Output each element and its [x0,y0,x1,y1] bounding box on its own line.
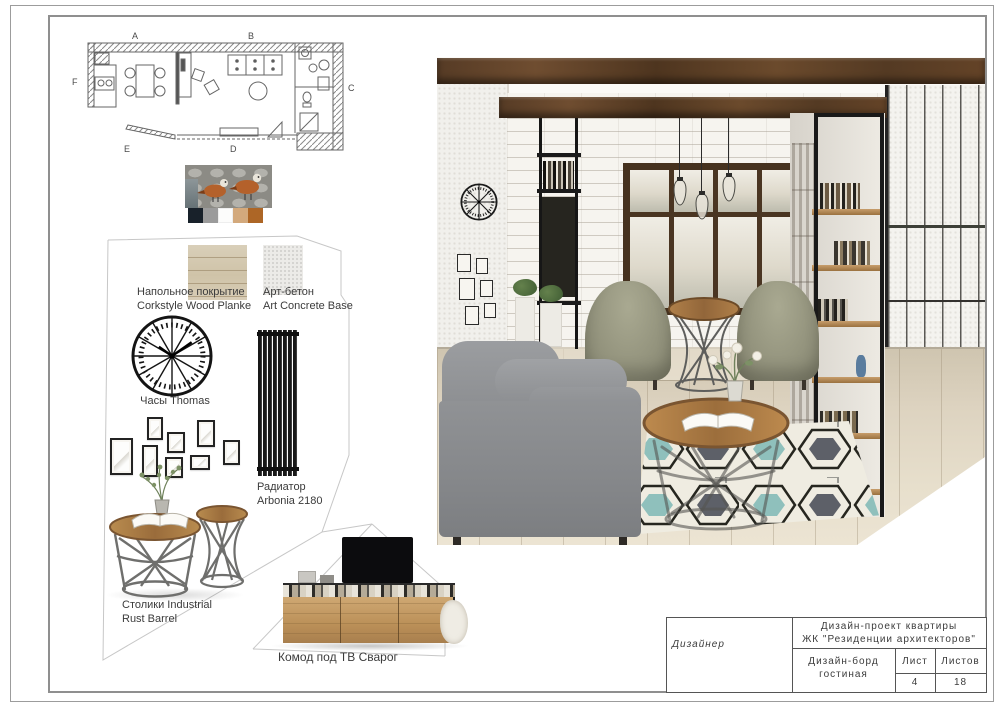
books-row [818,299,848,321]
pendant-lamp [722,173,736,203]
sofa-leg [619,537,627,545]
window-pane [630,170,669,212]
coffee-table [642,393,790,533]
plan-label-b: B [248,31,254,41]
shelf-top-bar [814,113,884,117]
plan-label-f: F [72,77,78,87]
shelf-board [812,209,884,215]
shelf-rail [575,105,578,349]
books-row [834,241,870,265]
interior-render [437,57,985,545]
chair-leg [802,380,806,390]
shelf-board [812,321,884,327]
tv-stand-label: Комод под ТВ Сварог [278,650,438,666]
render-wall-clock [460,183,498,221]
sheet-label: Лист [895,655,935,668]
render-gallery-frame [457,254,471,272]
books-row [820,183,860,209]
design-board-sheet: A B C D E F [0,0,1000,709]
palette-swatch-rust [248,208,263,223]
gallery-frame [197,420,215,447]
pendant-lamp [695,191,709,221]
radiator-item [258,330,298,476]
plan-label-a: A [132,31,138,41]
palette-swatch-dark [188,208,203,223]
tv-stand-open-shelf [283,583,455,597]
flower-vase [705,337,765,407]
inspiration-photo [185,165,272,208]
ducks-illustration [193,171,269,205]
concrete-label: Арт-бетон Art Concrete Base [263,285,353,314]
pendant-cord [679,118,680,178]
plan-label-c: C [348,83,355,93]
render-gallery-frame [465,306,479,325]
project-title: Дизайн-проект квартиры ЖК "Резиденции ар… [792,620,986,646]
shelf-board [812,265,884,271]
floor-plan: A B C D E F [60,25,360,160]
shelf-board [537,189,581,193]
potted-plant [513,279,537,296]
palette-swatch-gray [203,208,218,223]
render-gallery-frame [459,278,475,300]
industrial-table-small [196,503,248,591]
sofa-leg [453,537,461,545]
color-palette [188,208,268,223]
cabinet-seam [340,597,341,643]
sofa-body [439,401,641,537]
gallery-frame [223,440,240,465]
chair-leg [653,380,657,390]
potted-plant [539,285,563,302]
pendant-lamp [673,177,687,207]
render-gallery-frame [484,303,496,318]
title-block: Дизайнер Дизайн-проект квартиры ЖК "Рези… [666,617,987,693]
tv-screen [342,537,413,583]
shelf-rail [880,113,884,517]
ceiling-beam-front [437,58,985,84]
cabinet-seam [398,597,399,643]
glass-horizontal-bar [888,225,985,228]
board-name: Дизайн-борд гостиная [792,655,895,681]
gallery-frame [147,417,163,440]
radiator-label: Радиатор Arbonia 2180 [257,480,327,509]
gallery-frame [190,455,210,470]
sheets-total-label: Листов [935,655,986,668]
shelf-board [537,153,581,157]
sheets-total-number: 18 [935,676,986,689]
pendant-cord [701,118,702,192]
decor-box [298,571,316,583]
gallery-frame [167,432,185,453]
shelf-board [812,377,884,383]
plan-label-d: D [230,144,237,154]
designer-label: Дизайнер [672,638,725,651]
tables-label: Столики Industrial Rust Barrel [122,598,242,627]
palette-swatch-white [218,208,233,223]
plan-label-e: E [124,144,130,154]
palette-swatch-tan [233,208,248,223]
wall-clock-item [130,314,214,398]
sheet-number: 4 [895,676,935,689]
shelf-back-panel [542,197,575,297]
render-gallery-frame [476,258,488,274]
flooring-label: Напольное покрытие Corkstyle Wood Planke [137,285,252,314]
sheepskin-throw [440,600,468,644]
render-gallery-frame [480,280,493,297]
decor-box [320,575,334,583]
open-book-render [680,407,756,435]
decor-vase [856,355,866,377]
vase-with-branches [136,460,188,515]
pendant-cord [728,118,729,174]
tv-stand-cabinet [283,597,455,643]
open-book [130,508,190,532]
books-row [543,161,574,189]
sofa [437,335,642,545]
clock-label: Часы Thomas [130,394,220,408]
gallery-frame [110,438,133,475]
glass-horizontal-bar [888,300,985,302]
